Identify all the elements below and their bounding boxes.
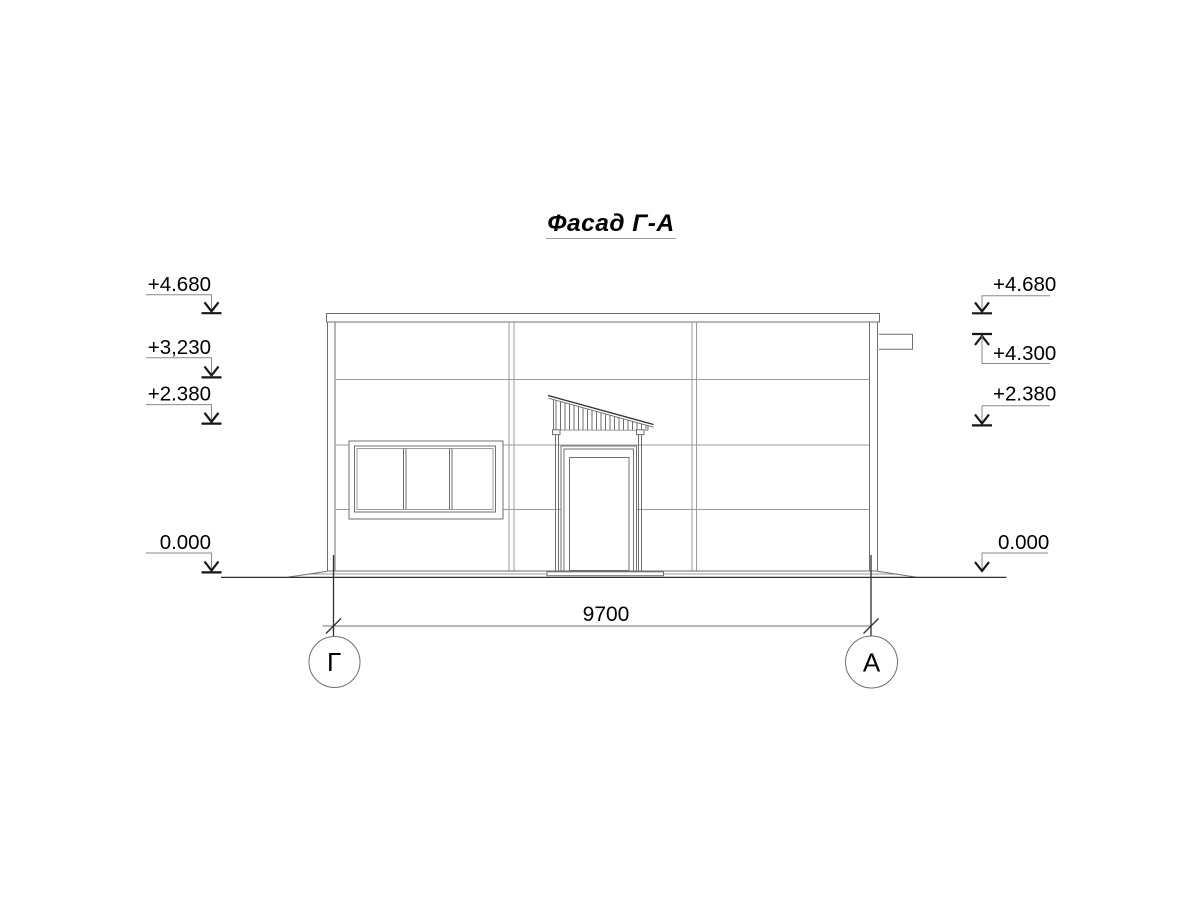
axis-label-left: Г xyxy=(327,647,341,677)
elevation-marker-right-0000: 0.000 xyxy=(975,531,1049,571)
scupper-outlet xyxy=(879,334,913,349)
axis-bubbles: Г А xyxy=(309,636,898,688)
drawing-sheet: Фасад Г-А xyxy=(0,0,1200,900)
title-block: Фасад Г-А xyxy=(546,210,676,239)
axis-label-right: А xyxy=(863,648,881,678)
facade-elevation-drawing: Фасад Г-А xyxy=(0,0,1200,900)
entrance-door xyxy=(561,446,637,572)
elevation-value: +4.680 xyxy=(148,273,211,296)
elevation-value: +2.380 xyxy=(993,383,1056,406)
canopy-post-cap-left xyxy=(553,430,561,435)
elevation-value: 0.000 xyxy=(998,531,1049,554)
marker-leader-line xyxy=(146,553,212,569)
dimension-label: 9700 xyxy=(583,603,630,626)
elevation-value: +2.380 xyxy=(148,383,211,406)
elevation-value: +4.680 xyxy=(993,273,1056,296)
marker-leader-line xyxy=(982,296,1050,310)
building-base xyxy=(221,571,1007,577)
building-outline xyxy=(221,314,1007,578)
elevation-value: +3,230 xyxy=(148,336,211,359)
window-outer-frame xyxy=(349,441,503,519)
elevation-marker-left-4680: +4.680 xyxy=(146,273,222,313)
marker-leader-line xyxy=(146,295,212,310)
elevation-marker-left-3230: +3,230 xyxy=(146,336,222,377)
marker-leader-line xyxy=(982,553,1048,569)
elevation-marker-right-4300: +4.300 xyxy=(972,334,1056,365)
elevation-value: +4.300 xyxy=(993,342,1056,365)
elevation-marker-right-2380: +2.380 xyxy=(972,383,1056,426)
elevation-markers-right: +4.680 +4.300 +2.380 0.000 xyxy=(972,273,1056,571)
drawing-title: Фасад Г-А xyxy=(547,210,674,237)
elevation-markers-left: +4.680 +3,230 +2.380 0.000 xyxy=(146,273,222,572)
parapet-cap xyxy=(327,314,880,323)
elevation-marker-left-2380: +2.380 xyxy=(146,383,222,424)
marker-leader-line xyxy=(982,406,1050,422)
elevation-marker-right-4680: +4.680 xyxy=(972,273,1056,313)
marker-leader-line xyxy=(146,358,212,374)
elevation-marker-left-0000: 0.000 xyxy=(146,531,222,572)
door-outer-frame xyxy=(561,446,637,572)
canopy-hatch xyxy=(556,400,646,430)
door-threshold xyxy=(547,572,664,576)
window xyxy=(349,441,503,519)
elevation-value: 0.000 xyxy=(160,531,211,554)
marker-leader-line xyxy=(146,405,212,420)
canopy-post-cap-right xyxy=(637,430,645,435)
